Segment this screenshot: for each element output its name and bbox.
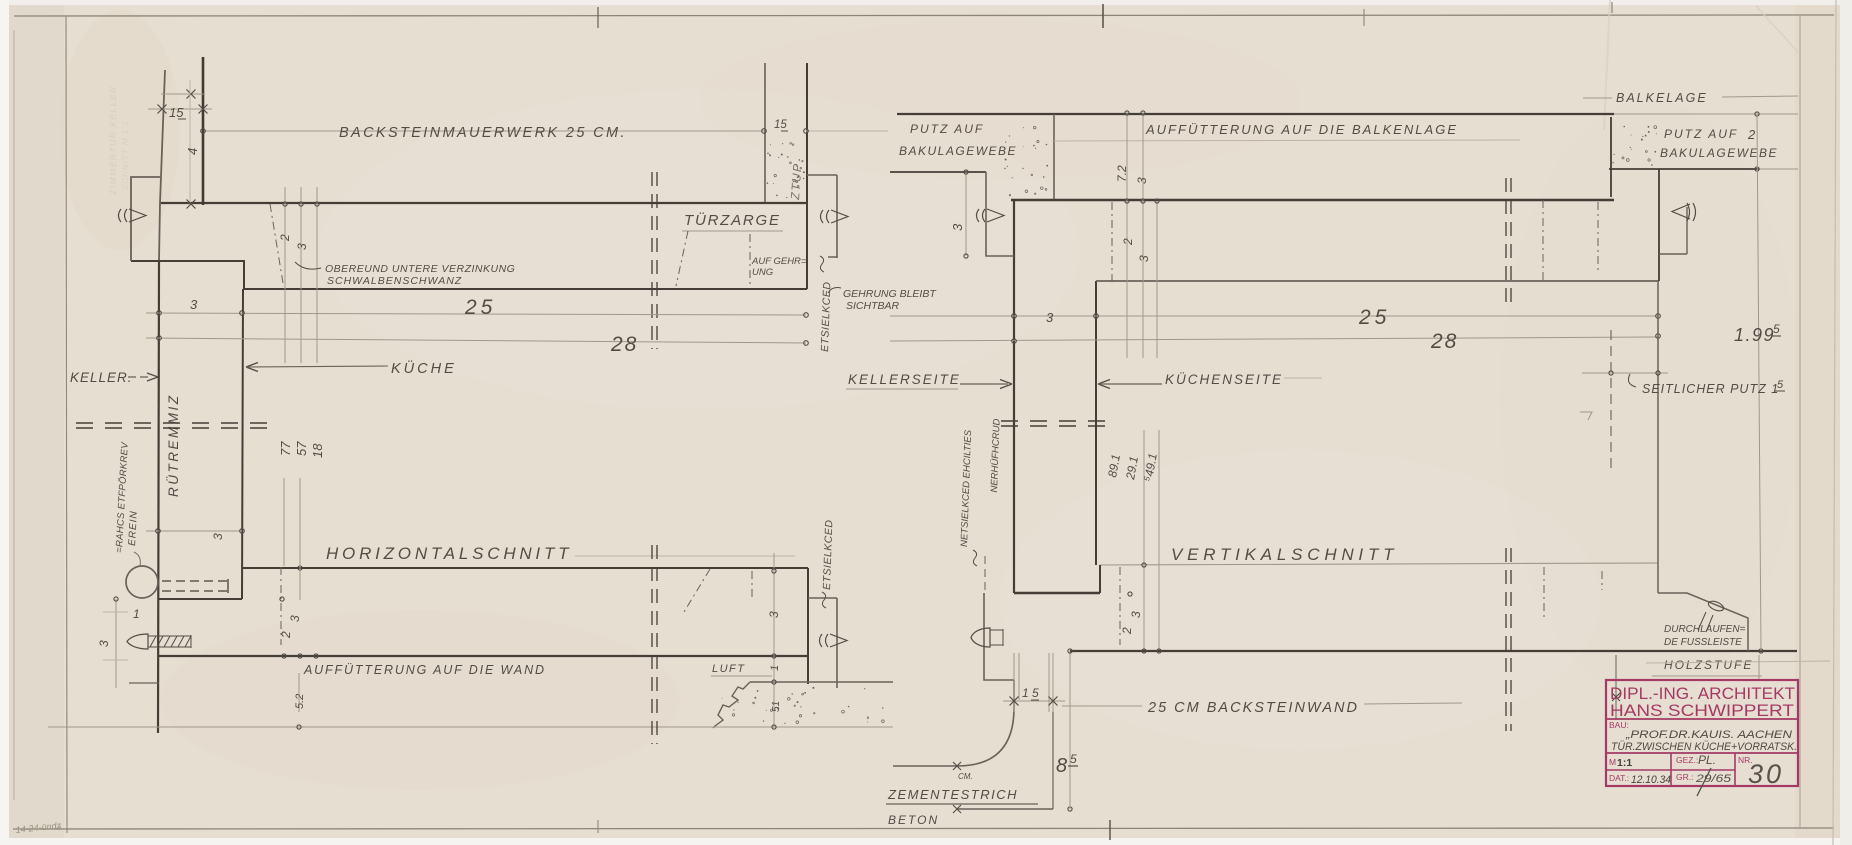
svg-text:5.2: 5.2 bbox=[294, 694, 306, 709]
svg-text:28: 28 bbox=[610, 333, 638, 356]
svg-text:AUF GEHR=: AUF GEHR= bbox=[751, 256, 807, 267]
svg-text:2: 2 bbox=[1121, 238, 1135, 246]
svg-text:4: 4 bbox=[185, 148, 200, 155]
svg-text:SEITLICHER PUTZ 1: SEITLICHER PUTZ 1 bbox=[1642, 382, 1779, 396]
svg-text:3: 3 bbox=[295, 243, 309, 250]
svg-text:3: 3 bbox=[1046, 310, 1054, 325]
svg-text:SCHNITT M 1:1: SCHNITT M 1:1 bbox=[121, 120, 130, 190]
svg-text:AUFFÜTTERUNG AUF DIE WAND: AUFFÜTTERUNG AUF DIE WAND bbox=[303, 663, 546, 677]
svg-text:2: 2 bbox=[1747, 127, 1756, 142]
svg-text:HANS SCHWIPPERT: HANS SCHWIPPERT bbox=[1610, 701, 1794, 720]
svg-text:25: 25 bbox=[464, 296, 496, 319]
svg-text:1: 1 bbox=[133, 607, 140, 621]
svg-text:„PROF.DR.KAUIS. AACHEN: „PROF.DR.KAUIS. AACHEN bbox=[1625, 729, 1792, 741]
svg-text:15: 15 bbox=[169, 105, 184, 120]
svg-text:15: 15 bbox=[774, 119, 787, 131]
svg-text:DE FUSSLEISTE: DE FUSSLEISTE bbox=[1664, 637, 1742, 648]
svg-text:HOLZSTUFE: HOLZSTUFE bbox=[1664, 658, 1753, 672]
svg-text:BETON: BETON bbox=[888, 813, 939, 827]
svg-text:7.2: 7.2 bbox=[1115, 165, 1129, 182]
svg-text:KELLERSEITE: KELLERSEITE bbox=[848, 372, 961, 387]
svg-text:3: 3 bbox=[1135, 177, 1149, 184]
svg-text:ETSIELKCED: ETSIELKCED bbox=[819, 281, 833, 352]
svg-text:CM.: CM. bbox=[958, 772, 973, 781]
svg-text:77: 77 bbox=[278, 441, 293, 456]
svg-text:PUTZ AUF: PUTZ AUF bbox=[910, 122, 984, 136]
svg-text:5: 5 bbox=[1773, 322, 1780, 336]
svg-text:M: M bbox=[1609, 757, 1616, 767]
svg-text:ZIMMERTUR KELLER: ZIMMERTUR KELLER bbox=[108, 85, 118, 196]
svg-text:18: 18 bbox=[310, 443, 325, 458]
svg-text:RÜTREMMIZ: RÜTREMMIZ bbox=[166, 394, 181, 498]
svg-text:HORIZONTALSCHNITT: HORIZONTALSCHNITT bbox=[326, 544, 572, 563]
svg-text:BALKELAGE: BALKELAGE bbox=[1616, 91, 1708, 105]
svg-text:1.99: 1.99 bbox=[1734, 325, 1775, 345]
svg-text:1:1: 1:1 bbox=[1617, 757, 1632, 769]
svg-text:DURCHLAUFEN=: DURCHLAUFEN= bbox=[1664, 624, 1746, 635]
svg-text:2: 2 bbox=[278, 234, 292, 242]
svg-text:ZTUP: ZTUP bbox=[788, 162, 805, 201]
svg-text:TÜRZARGE: TÜRZARGE bbox=[684, 211, 782, 229]
svg-text:KÜCHENSEITE: KÜCHENSEITE bbox=[1165, 372, 1283, 387]
svg-text:ZEMENTESTRICH: ZEMENTESTRICH bbox=[887, 787, 1018, 802]
svg-text:OBEREUND UNTERE VERZINKUNG: OBEREUND UNTERE VERZINKUNG bbox=[325, 263, 515, 275]
svg-text:51: 51 bbox=[771, 701, 782, 712]
svg-text:KÜCHE: KÜCHE bbox=[391, 359, 457, 377]
svg-text:5: 5 bbox=[1777, 379, 1784, 391]
svg-text:SICHTBAR: SICHTBAR bbox=[846, 300, 900, 312]
svg-text:BACKSTEINMAUERWERK 25 CM.: BACKSTEINMAUERWERK 25 CM. bbox=[339, 125, 627, 141]
svg-text:12.10.34: 12.10.34 bbox=[1631, 774, 1671, 786]
svg-text:1 5: 1 5 bbox=[1022, 686, 1039, 700]
svg-text:3: 3 bbox=[1137, 255, 1151, 262]
svg-text:29/65: 29/65 bbox=[1695, 773, 1732, 785]
svg-text:PL.: PL. bbox=[1698, 753, 1716, 767]
svg-text:BAKULAGEWEBE: BAKULAGEWEBE bbox=[1660, 146, 1778, 160]
svg-text:EREIN: EREIN bbox=[127, 510, 140, 546]
svg-text:3: 3 bbox=[97, 640, 111, 647]
svg-text:28: 28 bbox=[1430, 330, 1458, 353]
svg-text:25 CM BACKSTEINWAND: 25 CM BACKSTEINWAND bbox=[1147, 700, 1360, 716]
svg-text:25: 25 bbox=[1358, 306, 1390, 329]
svg-text:GEHRUNG BLEIBT: GEHRUNG BLEIBT bbox=[843, 288, 937, 300]
svg-text:3: 3 bbox=[767, 611, 781, 618]
svg-text:PUTZ AUF: PUTZ AUF bbox=[1664, 127, 1738, 141]
svg-text:2: 2 bbox=[279, 631, 293, 639]
svg-text:3: 3 bbox=[288, 615, 302, 622]
svg-text:3: 3 bbox=[1129, 611, 1143, 618]
svg-text:3: 3 bbox=[950, 223, 965, 231]
svg-text:DAT.:: DAT.: bbox=[1609, 773, 1629, 783]
svg-text:GR.:: GR.: bbox=[1676, 772, 1693, 782]
svg-text:SCHWALBENSCHWANZ: SCHWALBENSCHWANZ bbox=[327, 275, 462, 287]
svg-text:UNG: UNG bbox=[752, 267, 773, 278]
svg-text:BAKULAGEWEBE: BAKULAGEWEBE bbox=[899, 144, 1017, 158]
svg-text:ETSIELKCED: ETSIELKCED bbox=[821, 519, 835, 590]
svg-text:5: 5 bbox=[1070, 752, 1077, 766]
svg-text:LUFT: LUFT bbox=[712, 663, 746, 675]
svg-text:1: 1 bbox=[769, 665, 781, 671]
svg-text:57: 57 bbox=[294, 441, 309, 456]
svg-text:KELLER.: KELLER. bbox=[70, 370, 133, 385]
svg-text:VERTIKALSCHNITT: VERTIKALSCHNITT bbox=[1171, 545, 1397, 564]
svg-text:3: 3 bbox=[211, 533, 225, 540]
svg-text:GEZ.:: GEZ.: bbox=[1676, 755, 1698, 765]
svg-text:TÜR.ZWISCHEN KÜCHE+VORRATSK.: TÜR.ZWISCHEN KÜCHE+VORRATSK. bbox=[1611, 741, 1797, 753]
svg-text:2: 2 bbox=[1120, 627, 1134, 635]
svg-text:30: 30 bbox=[1748, 759, 1784, 789]
svg-text:AUFFÜTTERUNG AUF DIE BALKENLAG: AUFFÜTTERUNG AUF DIE BALKENLAGE bbox=[1145, 122, 1458, 137]
svg-text:3: 3 bbox=[190, 297, 198, 312]
svg-text:8: 8 bbox=[1056, 755, 1067, 777]
